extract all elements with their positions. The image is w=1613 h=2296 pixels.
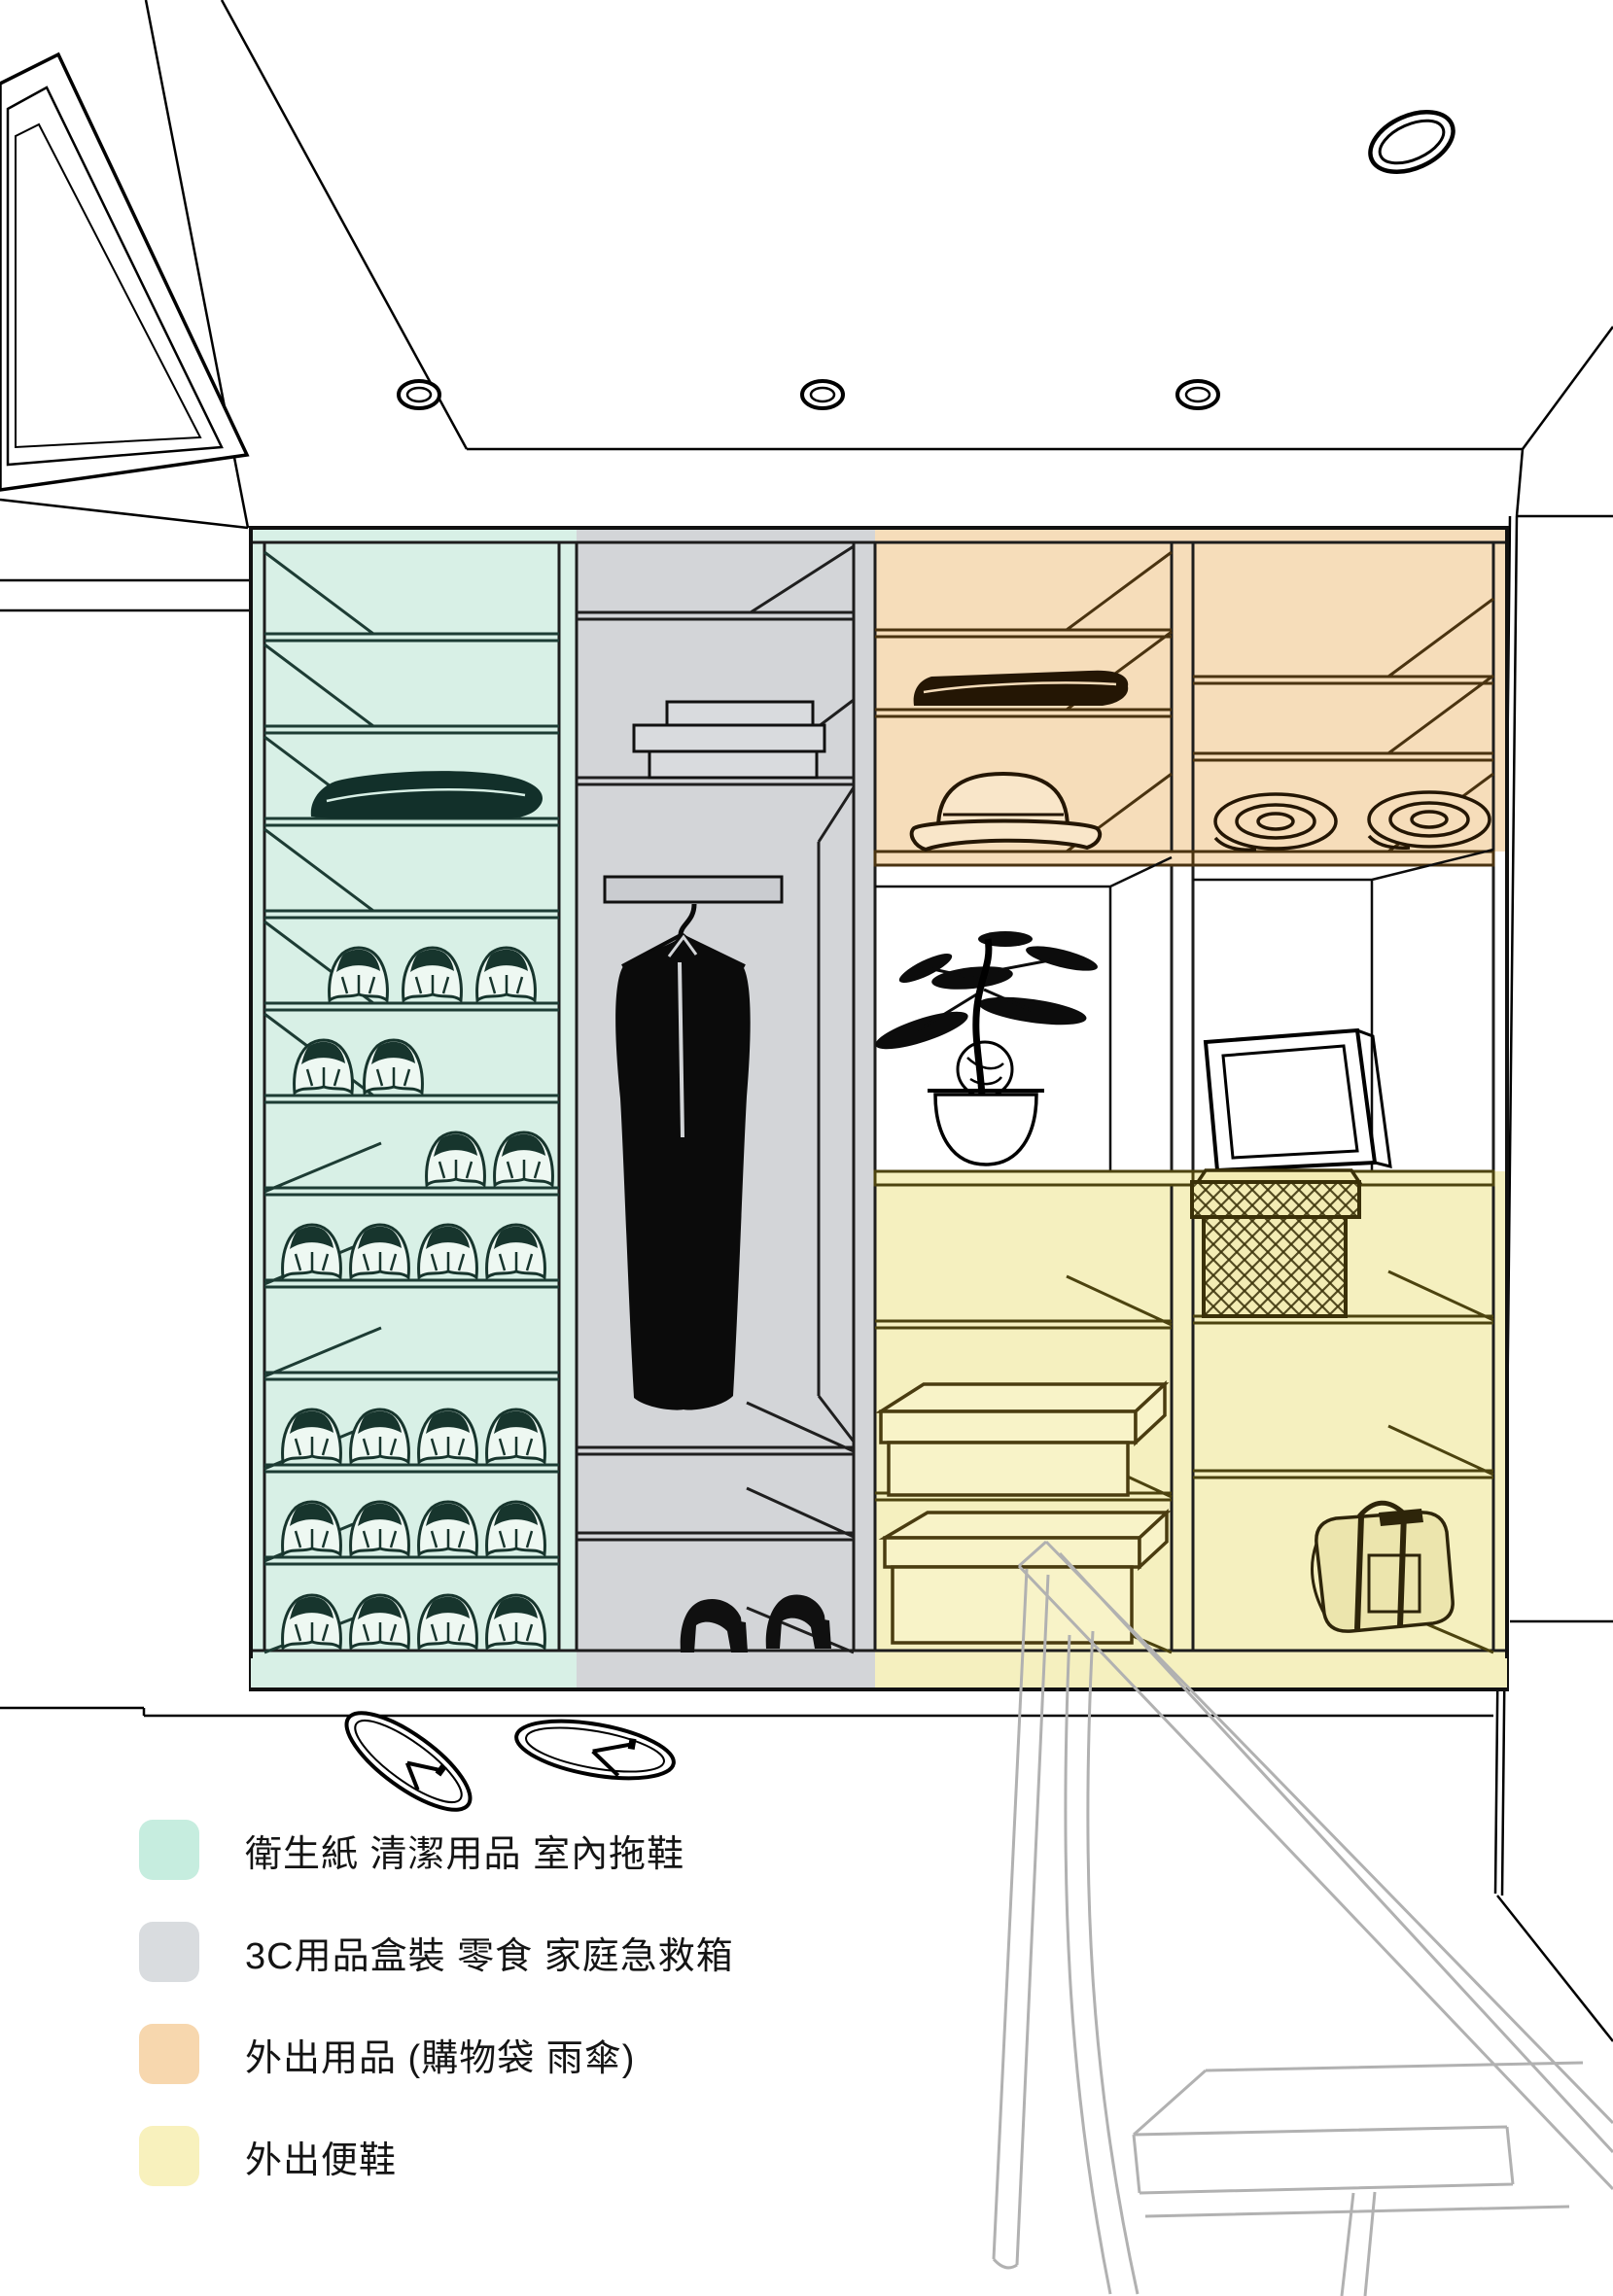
slippers-row xyxy=(330,948,536,1000)
closet-plinth xyxy=(251,1658,1507,1689)
legend-item-orange: 外出用品 (購物袋 雨傘) xyxy=(139,2024,820,2084)
legend-item-mint: 衛生紙 清潔用品 室內拖鞋 xyxy=(139,1820,820,1880)
recessed-light-icon xyxy=(802,381,843,408)
hanging-coat xyxy=(615,933,751,1410)
legend-label: 外出用品 (購物袋 雨傘) xyxy=(245,2028,635,2081)
recessed-light-icon xyxy=(399,381,439,408)
mint-swatch-icon xyxy=(139,1820,199,1880)
gray-swatch-icon xyxy=(139,1922,199,1982)
recessed-light-large-icon xyxy=(1361,100,1462,184)
woven-basket xyxy=(1192,1170,1359,1316)
legend-label: 3C用品盒裝 零食 家庭急救箱 xyxy=(245,1926,734,1979)
legend-item-yellow: 外出便鞋 xyxy=(139,2126,820,2186)
yellow-swatch-icon xyxy=(139,2126,199,2186)
orange-swatch-icon xyxy=(139,2024,199,2084)
legend-label: 衛生紙 清潔用品 室內拖鞋 xyxy=(245,1824,684,1877)
ceiling-lights xyxy=(399,100,1462,408)
zone-legend: 衛生紙 清潔用品 室內拖鞋 3C用品盒裝 零食 家庭急救箱 外出用品 (購物袋 … xyxy=(139,1820,820,2228)
duffel-bag xyxy=(1313,1503,1454,1631)
ac-vent xyxy=(0,54,247,490)
entryway-closet-rendering: 衛生紙 清潔用品 室內拖鞋 3C用品盒裝 零食 家庭急救箱 外出用品 (購物袋 … xyxy=(0,0,1613,2296)
stool xyxy=(1134,2063,1583,2296)
legend-label: 外出便鞋 xyxy=(245,2130,397,2183)
recessed-light-icon xyxy=(1177,381,1218,408)
hanger-rod xyxy=(605,877,782,902)
chair-back xyxy=(1066,1631,1138,2294)
legend-item-gray: 3C用品盒裝 零食 家庭急救箱 xyxy=(139,1922,820,1982)
shoe-box xyxy=(881,1384,1165,1495)
